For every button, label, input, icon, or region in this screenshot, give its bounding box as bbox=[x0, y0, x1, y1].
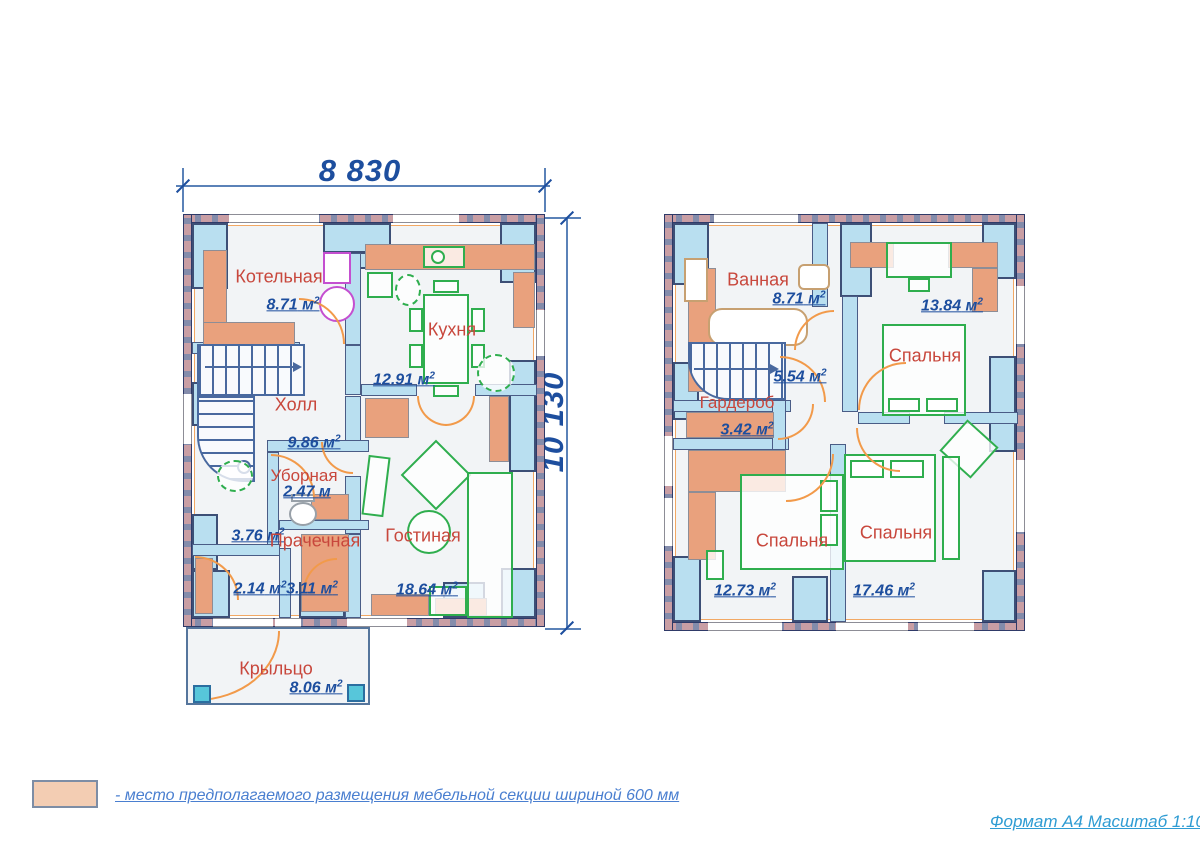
window bbox=[347, 618, 407, 627]
outer-wall-right bbox=[536, 214, 545, 627]
window bbox=[229, 214, 319, 223]
plant-icon bbox=[217, 460, 253, 492]
room-area-label: 8.71 м2 bbox=[773, 289, 826, 308]
plant-icon bbox=[477, 354, 515, 392]
porch-column bbox=[347, 684, 365, 702]
desk-icon bbox=[886, 242, 952, 278]
bench-icon bbox=[942, 456, 960, 560]
chair-icon bbox=[409, 308, 423, 332]
legend-text: - место предполагаемого размещения мебел… bbox=[115, 787, 679, 805]
chair-icon bbox=[433, 280, 459, 293]
stairs-arrow-head bbox=[293, 362, 302, 372]
window bbox=[664, 436, 673, 486]
window bbox=[708, 622, 782, 631]
width-dimension-line bbox=[176, 185, 550, 187]
partition-wall bbox=[345, 345, 361, 395]
pier bbox=[982, 570, 1016, 622]
window bbox=[536, 310, 545, 356]
stairs-icon bbox=[197, 344, 305, 396]
partition-wall bbox=[192, 544, 280, 556]
room-area-label: 17.46 м2 bbox=[853, 581, 915, 600]
outer-wall-left bbox=[664, 214, 673, 631]
extension-line bbox=[544, 168, 546, 212]
width-dimension-label: 8 830 bbox=[319, 153, 402, 189]
height-dimension-line bbox=[566, 218, 568, 630]
room-area-label: 5.54 м2 bbox=[774, 367, 827, 386]
room-area-label: 13.84 м2 bbox=[921, 296, 983, 315]
window bbox=[1016, 286, 1025, 344]
furniture-zone bbox=[513, 272, 535, 328]
furniture-zone bbox=[365, 398, 409, 438]
room-area-label: 9.86 м2 bbox=[288, 433, 341, 452]
room-area-label: 8.71 м2 bbox=[267, 295, 320, 314]
room-label: Кухня bbox=[428, 320, 476, 341]
legend-swatch bbox=[32, 780, 98, 808]
room-label: Ванная bbox=[727, 270, 789, 291]
chair-icon bbox=[908, 278, 930, 292]
pier bbox=[673, 556, 701, 622]
extension-line bbox=[182, 168, 184, 212]
room-label: Гостиная bbox=[385, 526, 461, 547]
pillow-icon bbox=[926, 398, 958, 412]
nightstand-icon bbox=[706, 550, 724, 580]
stove-icon bbox=[367, 272, 393, 298]
partition-wall bbox=[842, 296, 858, 412]
room-label: Котельная bbox=[235, 267, 322, 288]
window bbox=[714, 214, 798, 223]
window bbox=[183, 394, 192, 444]
room-label: Гардероб bbox=[700, 393, 775, 413]
chair-icon bbox=[409, 344, 423, 368]
room-label: Спальня bbox=[889, 346, 961, 367]
room-area-label: 2.14 м2 bbox=[234, 579, 287, 598]
room-label: Крыльцо bbox=[239, 659, 312, 680]
toilet-icon bbox=[798, 264, 830, 290]
toilet-icon bbox=[289, 502, 317, 526]
window-bay-pier bbox=[989, 356, 1016, 452]
furniture-zone bbox=[203, 322, 295, 346]
room-area-label: 12.73 м2 bbox=[714, 581, 776, 600]
sofa-icon bbox=[467, 472, 513, 618]
window bbox=[836, 622, 908, 631]
room-area-label: 2.47 м bbox=[283, 482, 330, 501]
floor-plan-sheet: 8 830 10 130 bbox=[0, 0, 1200, 848]
window bbox=[918, 622, 974, 631]
stairs-direction-arrow bbox=[205, 366, 295, 368]
boiler-icon bbox=[323, 252, 351, 284]
format-scale-note: Формат А4 Масштаб 1:100 bbox=[990, 812, 1200, 832]
room-label: Холл bbox=[275, 395, 317, 416]
stairs-direction-arrow bbox=[694, 368, 772, 370]
pier bbox=[792, 576, 828, 622]
washbasin-icon bbox=[684, 258, 708, 302]
room-area-label: 8.06 м2 bbox=[290, 678, 343, 697]
plant-icon bbox=[395, 274, 421, 306]
floor2-plan bbox=[664, 214, 1025, 631]
room-area-label: 18.64 м2 bbox=[396, 580, 458, 599]
room-area-label: 3.11 м2 bbox=[286, 579, 338, 598]
room-area-label: 12.91 м2 bbox=[373, 370, 435, 389]
window bbox=[664, 498, 673, 546]
furniture-zone bbox=[948, 242, 998, 268]
window bbox=[1016, 460, 1025, 532]
window bbox=[213, 618, 273, 627]
porch-column bbox=[193, 685, 211, 703]
bathtub-icon bbox=[708, 308, 808, 346]
sink-bowl-icon bbox=[431, 250, 445, 264]
room-label: Прачечная bbox=[270, 531, 360, 552]
entrance-door-opening bbox=[275, 618, 301, 627]
room-area-label: 3.42 м2 bbox=[721, 420, 774, 439]
window bbox=[393, 214, 459, 223]
room-label: Спальня bbox=[756, 531, 828, 552]
partition-wall bbox=[345, 396, 361, 446]
room-label: Спальня bbox=[860, 523, 932, 544]
furniture-zone bbox=[489, 396, 509, 462]
